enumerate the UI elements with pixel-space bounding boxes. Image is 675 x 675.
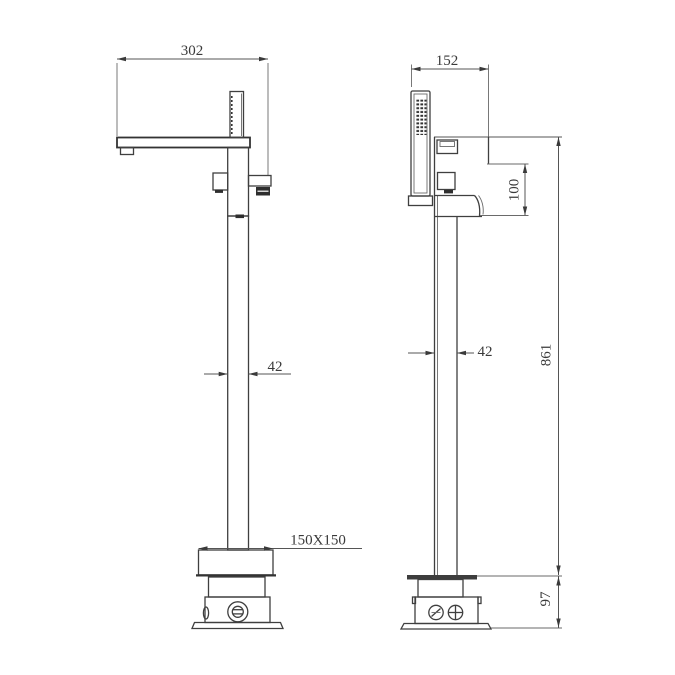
hand-shower-front <box>230 92 244 138</box>
technical-drawing-canvas: 302 42 <box>0 0 675 675</box>
hose-connector <box>257 188 270 196</box>
dim-97-label: 97 <box>538 591 554 607</box>
shower-holder-side <box>409 196 433 206</box>
spray-face <box>416 100 427 136</box>
arrow-down-icon <box>523 207 527 216</box>
arrow-right-icon <box>219 372 228 376</box>
dim-302-label: 302 <box>181 43 204 59</box>
dim-861-label: 861 <box>539 344 555 367</box>
arrow-down-icon <box>556 566 560 575</box>
arrow-right-icon <box>259 57 268 61</box>
dim-97: 97 <box>538 576 561 628</box>
temperature-handle <box>213 173 228 190</box>
dim-152-label: 152 <box>436 53 459 69</box>
dim-42-side: 42 <box>408 344 493 360</box>
screw-detail <box>228 602 248 622</box>
side-view: 152 <box>401 53 562 629</box>
arrow-left-icon <box>249 372 258 376</box>
dim-150x150-label: 150X150 <box>290 533 346 549</box>
dim-100: 100 <box>507 164 528 216</box>
mounting-box-side <box>415 597 478 624</box>
arrow-up-icon <box>556 137 560 146</box>
arrow-left-icon <box>457 351 466 355</box>
arrow-left-icon <box>412 67 421 71</box>
dim-861: 861 <box>539 137 561 575</box>
shower-holder <box>249 176 272 187</box>
arrow-down-icon <box>556 619 560 628</box>
diverter-detail <box>438 173 456 190</box>
arrow-left-icon <box>117 57 126 61</box>
riser-column-front <box>228 148 249 551</box>
base-cover-plate-front <box>196 550 276 597</box>
mounting-box-front <box>192 597 283 629</box>
arrow-right-icon <box>426 351 435 355</box>
dim-42-side-label: 42 <box>478 344 493 360</box>
dim-302: 302 <box>117 43 268 175</box>
front-view: 302 42 <box>117 43 362 629</box>
arrow-right-icon <box>480 67 489 71</box>
floor-flange-front <box>192 623 283 629</box>
spout <box>117 138 250 148</box>
hose-curve <box>475 196 480 217</box>
arrow-up-icon <box>556 577 560 586</box>
faucet-dimension-drawing: 302 42 <box>0 0 675 675</box>
spout-outlet <box>121 148 134 155</box>
dim-100-label: 100 <box>507 179 523 202</box>
arrow-up-icon <box>523 164 527 173</box>
hand-shower-side <box>409 91 433 206</box>
floor-flange-side <box>401 624 491 630</box>
handle-mark <box>216 190 223 192</box>
screw-detail <box>429 605 443 619</box>
dim-42-front-label: 42 <box>268 359 283 375</box>
column-joint <box>236 215 244 218</box>
screw-detail <box>448 605 462 619</box>
floor-plate <box>407 575 477 580</box>
dim-42-front: 42 <box>204 359 291 376</box>
dim-150x150: 150X150 <box>199 533 363 551</box>
side-port <box>203 607 208 619</box>
